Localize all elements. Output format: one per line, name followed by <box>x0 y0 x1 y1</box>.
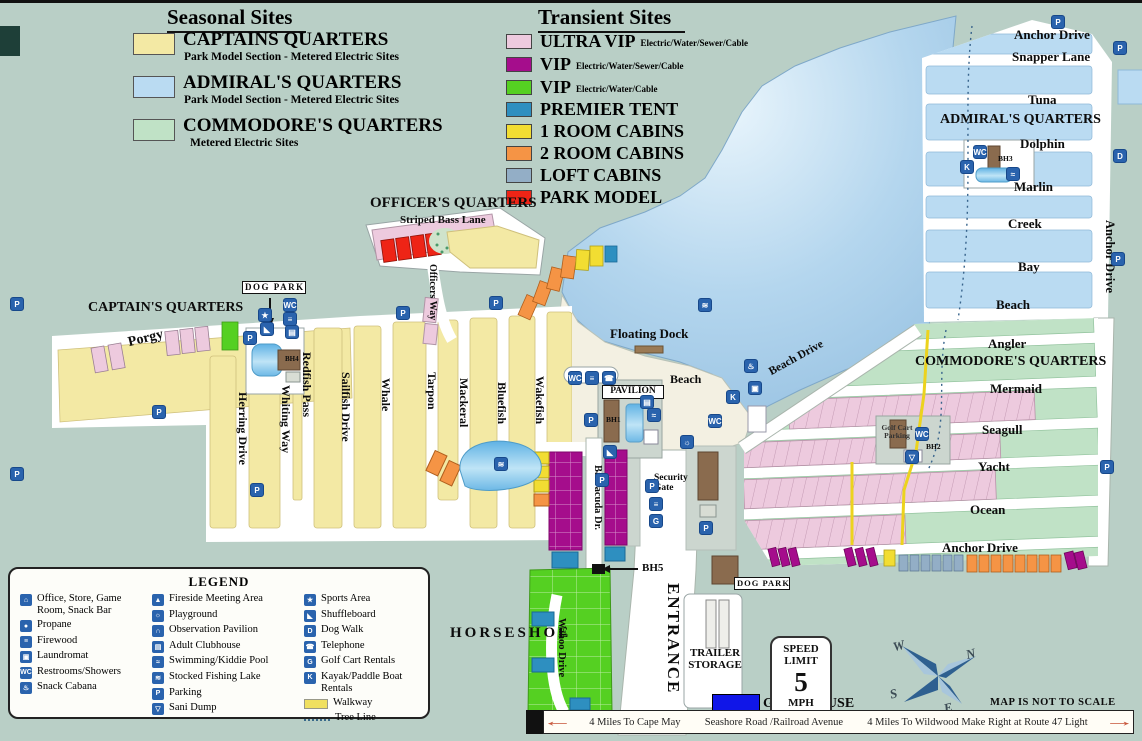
west-arrow-icon: ← <box>542 714 574 731</box>
observation-pavilion-icon: ∩ <box>152 625 164 637</box>
shuffleboard-icon: ◣ <box>603 445 617 459</box>
cape-may-distance: 4 Miles To Cape May <box>589 717 680 728</box>
seasonal-item-label: ADMIRAL'S QUARTERS <box>183 72 401 94</box>
fishing-lake-icon: ≋ <box>152 672 164 684</box>
vip-green-swatch <box>506 80 532 95</box>
speed-limit-value: 5 <box>772 669 830 696</box>
kayak-icon: K <box>960 160 974 174</box>
restrooms-icon: WC <box>283 298 297 312</box>
parking-icon: P <box>699 521 713 535</box>
admirals-quarters-label: ADMIRAL'S QUARTERS <box>940 113 1101 128</box>
snack-cabana-icon: ♨ <box>20 682 32 694</box>
seasonal-item-sub: Park Model Section - Metered Electric Si… <box>184 51 399 63</box>
bh1-label: BH1 <box>606 416 621 424</box>
trailer-storage-label: TRAILER STORAGE <box>686 648 744 671</box>
floating-dock-label: Floating Dock <box>610 327 688 341</box>
legend-item: ★Sports Area <box>304 593 418 606</box>
bh5-label: BH5 <box>642 563 663 575</box>
tree-line-swatch <box>304 719 330 721</box>
seashore-road-bar: ← 4 Miles To Cape May Seashore Road /Rai… <box>526 710 1134 734</box>
transient-item: 1 ROOM CABINS <box>506 120 684 142</box>
legend-item: ▣Laundromat <box>20 650 152 663</box>
loft-cabin-swatch <box>506 168 532 183</box>
parking-icon: P <box>10 467 24 481</box>
legend-item: ▽Sani Dump <box>152 702 304 715</box>
dog-walk-icon: D <box>1113 149 1127 163</box>
street-marlin: Marlin <box>1014 180 1053 194</box>
walkway-swatch <box>304 699 328 709</box>
legend-item: DDog Walk <box>304 624 418 637</box>
street-bluefish: Bluefish <box>495 382 508 424</box>
kayak-icon: K <box>304 672 316 684</box>
golf-cart-icon: G <box>649 514 663 528</box>
commodores-quarters-label: COMMODORE'S QUARTERS <box>915 355 1106 370</box>
transient-item: VIP Electric/Water/Cable <box>506 76 657 98</box>
restrooms-icon: WC <box>915 427 929 441</box>
fishing-lake-icon: ≋ <box>494 457 508 471</box>
adult-clubhouse-icon: ▤ <box>285 325 299 339</box>
parking-icon: P <box>645 479 659 493</box>
ultra-vip-swatch <box>506 34 532 49</box>
dog-walk-icon: D <box>304 625 316 637</box>
legend-item: ∩Observation Pavilion <box>152 624 304 637</box>
golf-cart-parking-label: Golf Cart Parking <box>876 424 918 440</box>
entrance-label: ENTRANCE <box>664 583 682 694</box>
officers-quarters-label: OFFICER'S QUARTERS <box>370 196 537 212</box>
firewood-icon: ≡ <box>20 636 32 648</box>
parking-icon: P <box>584 413 598 427</box>
legend-item: ▤Adult Clubhouse <box>152 640 304 653</box>
street-tuna: Tuna <box>1028 93 1056 107</box>
street-bay: Bay <box>1018 260 1040 274</box>
parking-icon: P <box>1111 252 1125 266</box>
legend-item: ☼Playground <box>152 609 304 622</box>
legend-item: GGolf Cart Rentals <box>304 655 418 668</box>
parking-icon: P <box>10 297 24 311</box>
legend-box: LEGEND ⌂Office, Store, Game Room, Snack … <box>8 567 430 719</box>
parking-icon: P <box>396 306 410 320</box>
parking-icon: P <box>250 483 264 497</box>
sports-area-icon: ★ <box>258 308 272 322</box>
swimming-icon: ≈ <box>152 656 164 668</box>
sports-court <box>748 406 766 432</box>
parking-icon: P <box>152 405 166 419</box>
restrooms-icon: WC <box>20 667 32 679</box>
captains-quarters-label: CAPTAIN'S QUARTERS <box>88 301 243 316</box>
street-dolphin: Dolphin <box>1020 137 1065 151</box>
bh3-label: BH3 <box>998 155 1013 163</box>
legend-item: ◣Shuffleboard <box>304 609 418 622</box>
legend-item: ≈Swimming/Kiddie Pool <box>152 655 304 668</box>
street-mackeral: Mackeral <box>457 378 470 427</box>
commodores-quarters-swatch <box>133 119 175 141</box>
transient-item: PREMIER TENT <box>506 98 678 120</box>
legend-item: KKayak/Paddle Boat Rentals <box>304 671 418 695</box>
not-to-scale-label: MAP IS NOT TO SCALE <box>990 697 1116 708</box>
legend-item: ♨Snack Cabana <box>20 681 152 694</box>
restrooms-icon: WC <box>708 414 722 428</box>
one-room-cabin-swatch <box>506 124 532 139</box>
playground-icon: ☼ <box>680 435 694 449</box>
golf-cart-icon: G <box>304 656 316 668</box>
office-store-icon: ⌂ <box>20 594 32 606</box>
east-arrow-icon: → <box>1104 714 1136 731</box>
restrooms-icon: WC <box>568 371 582 385</box>
beach-label: Beach <box>670 373 701 386</box>
horseshoe-label: HORSESHOE <box>450 626 571 642</box>
legend-column-3: ★Sports Area ◣Shuffleboard DDog Walk ☎Te… <box>304 593 418 726</box>
dog-park-sign-2: DOG PARK <box>734 577 790 590</box>
seasonal-item-sub: Park Model Section - Metered Electric Si… <box>184 94 399 106</box>
transient-item: VIP Electric/Water/Sewer/Cable <box>506 53 683 75</box>
swimming-icon: ≈ <box>647 408 661 422</box>
legend-item-tree-line: Tree Line <box>304 712 418 724</box>
parking-icon: P <box>489 296 503 310</box>
street-angler: Angler <box>988 337 1026 351</box>
kayak-icon: K <box>726 390 740 404</box>
compass-rose <box>902 646 976 704</box>
legend-item: ☎Telephone <box>304 640 418 653</box>
telephone-icon: ☎ <box>304 641 316 653</box>
playground-icon: ☼ <box>152 610 164 622</box>
two-room-cabin-swatch <box>506 146 532 161</box>
firewood-icon: ≡ <box>585 371 599 385</box>
street-beach-right: Beach <box>996 298 1030 312</box>
legend-item: ≡Firewood <box>20 635 152 648</box>
legend-column-2: ▲Fireside Meeting Area ☼Playground ∩Obse… <box>152 593 304 726</box>
street-seagull: Seagull <box>982 423 1022 437</box>
street-anchor-drive-top: Anchor Drive <box>1014 28 1090 42</box>
firewood-icon: ≡ <box>283 312 297 326</box>
legend-item: ●Propane <box>20 619 152 632</box>
seasonal-item-label: COMMODORE'S QUARTERS <box>183 115 443 137</box>
legend-title: LEGEND <box>20 574 418 590</box>
parking-icon: P <box>1100 460 1114 474</box>
street-mermaid: Mermaid <box>990 382 1042 396</box>
wildwood-distance: 4 Miles To Wildwood Make Right at Route … <box>867 717 1087 728</box>
seasonal-item-label: CAPTAINS QUARTERS <box>183 29 388 51</box>
bh2-label: BH2 <box>926 443 941 451</box>
street-anchor-drive-bottom: Anchor Drive <box>942 541 1018 555</box>
floating-dock <box>635 346 663 353</box>
laundromat-icon: ▣ <box>748 381 762 395</box>
swimming-icon: ≈ <box>1006 167 1020 181</box>
street-whiting-way: Whiting Way <box>279 385 292 453</box>
seashore-road-label: Seashore Road /Railroad Avenue <box>705 717 843 728</box>
sani-dump-icon: ▽ <box>905 450 919 464</box>
dog-park-sign: DOG PARK <box>242 281 306 294</box>
vip-swatch <box>506 57 532 72</box>
admirals-outlot <box>1118 70 1142 104</box>
legend-item: ▲Fireside Meeting Area <box>152 593 304 606</box>
shuffleboard-icon: ◣ <box>260 322 274 336</box>
street-wahoo-drive: Wahoo Drive <box>556 618 567 677</box>
pavilion-sign: PAVILION <box>602 385 664 399</box>
shuffleboard-icon: ◣ <box>304 610 316 622</box>
street-yacht: Yacht <box>978 460 1010 474</box>
restrooms-icon: WC <box>973 145 987 159</box>
street-striped-bass-lane: Striped Bass Lane <box>400 215 486 227</box>
legend-column-1: ⌂Office, Store, Game Room, Snack Bar ●Pr… <box>20 593 152 726</box>
legend-item: PParking <box>152 687 304 700</box>
street-sailfish-drive: Sailfish Drive <box>339 372 352 442</box>
transient-item: ULTRA VIP Electric/Water/Sewer/Cable <box>506 30 748 52</box>
admirals-quarters-swatch <box>133 76 175 98</box>
transient-legend-title: Transient Sites <box>538 5 685 33</box>
adult-clubhouse-icon: ▤ <box>152 641 164 653</box>
captains-quarters-swatch <box>133 33 175 55</box>
parking-icon: P <box>595 473 609 487</box>
parking-icon: P <box>1051 15 1065 29</box>
street-tarpon: Tarpon <box>425 372 438 410</box>
laundromat-icon: ▣ <box>20 651 32 663</box>
firewood-icon: ≡ <box>649 497 663 511</box>
campground-map: Seasonal Sites CAPTAINS QUARTERS Park Mo… <box>0 0 1142 741</box>
legend-item: WCRestrooms/Showers <box>20 666 152 679</box>
speed-limit-sign: SPEED LIMIT 5 MPH <box>770 636 832 720</box>
seasonal-item-sub: Metered Electric Sites <box>190 137 298 149</box>
transient-item: 2 ROOM CABINS <box>506 142 684 164</box>
fireside-icon: ▲ <box>152 594 164 606</box>
street-officers-way: Officers Way <box>427 264 438 320</box>
adult-clubhouse-icon: ▤ <box>640 395 654 409</box>
street-creek: Creek <box>1008 217 1042 231</box>
road-bar-end-block <box>526 710 543 734</box>
premier-tent-swatch <box>506 102 532 117</box>
street-ocean: Ocean <box>970 503 1005 517</box>
legend-item: ≋Stocked Fishing Lake <box>152 671 304 684</box>
telephone-icon: ☎ <box>602 371 616 385</box>
propane-icon: ● <box>20 620 32 632</box>
street-herring-drive: Herring Drive <box>236 392 249 465</box>
parking-icon: P <box>243 331 257 345</box>
transient-item: LOFT CABINS <box>506 164 661 186</box>
street-wakefish: Wakefish <box>533 376 546 424</box>
street-redfish-pass: Redfish Pass <box>300 352 313 417</box>
legend-item: ⌂Office, Store, Game Room, Snack Bar <box>20 593 152 617</box>
security-gate-label: Security Gate <box>654 474 704 494</box>
snack-cabana-icon: ♨ <box>744 359 758 373</box>
street-snapper-lane: Snapper Lane <box>1012 50 1090 64</box>
street-whale: Whale <box>379 378 392 411</box>
sports-area-icon: ★ <box>304 594 316 606</box>
sani-dump-icon: ▽ <box>152 703 164 715</box>
parking-icon: P <box>1113 41 1127 55</box>
parking-icon: P <box>152 688 164 700</box>
legend-item-walkway: Walkway <box>304 697 418 709</box>
bh4-label: BH4 <box>285 356 299 363</box>
fishing-lake-icon: ≋ <box>698 298 712 312</box>
